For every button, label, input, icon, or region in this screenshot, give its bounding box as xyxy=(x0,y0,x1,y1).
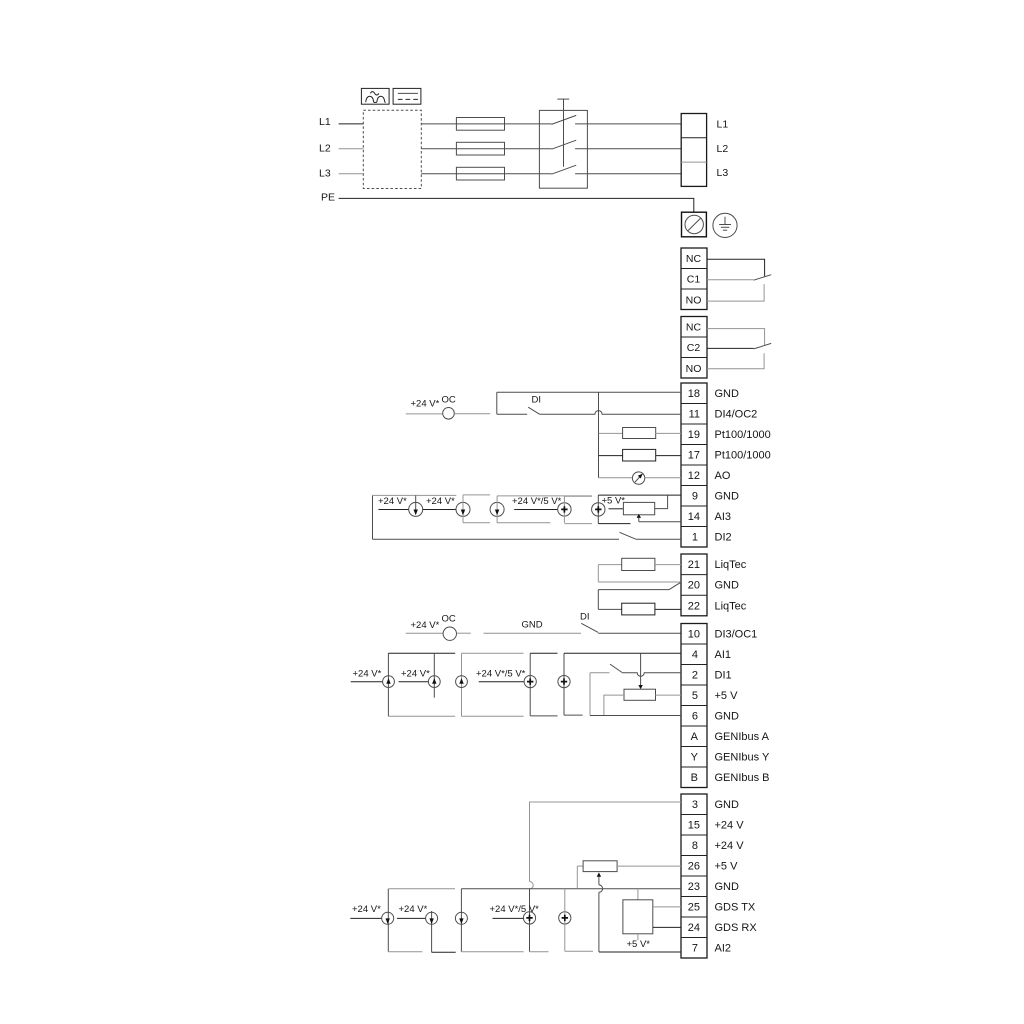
svg-text:OC: OC xyxy=(442,614,456,625)
svg-text:C1: C1 xyxy=(687,274,701,286)
svg-text:8: 8 xyxy=(692,840,698,852)
svg-text:GDS TX: GDS TX xyxy=(715,902,756,914)
svg-text:+24 V*: +24 V* xyxy=(411,620,440,631)
svg-text:L2: L2 xyxy=(717,143,729,155)
svg-text:1: 1 xyxy=(692,532,698,544)
svg-text:15: 15 xyxy=(688,820,700,832)
svg-text:19: 19 xyxy=(688,429,700,441)
svg-text:GND: GND xyxy=(715,799,740,811)
svg-text:+24 V*: +24 V* xyxy=(401,668,430,679)
svg-text:Pt100/1000: Pt100/1000 xyxy=(715,429,771,441)
svg-text:Y: Y xyxy=(691,752,699,764)
svg-text:DI1: DI1 xyxy=(715,670,732,682)
svg-text:20: 20 xyxy=(688,580,700,592)
svg-text:2: 2 xyxy=(692,670,698,682)
svg-text:GENIbus Y: GENIbus Y xyxy=(715,752,770,764)
svg-text:9: 9 xyxy=(692,491,698,503)
svg-text:12: 12 xyxy=(688,470,700,482)
svg-text:+5 V: +5 V xyxy=(715,861,739,873)
svg-text:7: 7 xyxy=(692,943,698,955)
svg-text:GND: GND xyxy=(715,388,740,400)
svg-text:NO: NO xyxy=(686,294,702,306)
svg-text:GND: GND xyxy=(715,881,740,893)
svg-text:+24 V*: +24 V* xyxy=(353,668,382,679)
svg-text:24: 24 xyxy=(688,922,700,934)
svg-text:+24 V*/5 V*: +24 V*/5 V* xyxy=(512,496,562,507)
svg-text:+24 V*/5 V*: +24 V*/5 V* xyxy=(476,668,526,679)
svg-text:DI: DI xyxy=(532,395,542,406)
svg-text:11: 11 xyxy=(689,409,700,421)
svg-text:26: 26 xyxy=(688,861,700,873)
svg-text:+5 V*: +5 V* xyxy=(627,939,651,950)
svg-text:14: 14 xyxy=(688,511,700,523)
svg-text:AI2: AI2 xyxy=(715,943,732,955)
svg-text:L2: L2 xyxy=(319,143,331,155)
svg-text:23: 23 xyxy=(688,881,700,893)
svg-text:A: A xyxy=(691,731,699,743)
svg-text:+24 V*: +24 V* xyxy=(399,904,428,915)
svg-text:+24 V: +24 V xyxy=(715,840,745,852)
svg-text:NC: NC xyxy=(686,253,702,265)
svg-text:GND: GND xyxy=(522,619,543,630)
svg-text:AI3: AI3 xyxy=(715,511,732,523)
svg-text:6: 6 xyxy=(692,711,698,723)
svg-text:+24 V*: +24 V* xyxy=(426,496,455,507)
svg-text:10: 10 xyxy=(688,629,700,641)
svg-text:L1: L1 xyxy=(319,116,331,128)
svg-text:GND: GND xyxy=(715,491,740,503)
svg-text:DI2: DI2 xyxy=(715,532,732,544)
svg-text:4: 4 xyxy=(692,649,698,661)
svg-text:AI1: AI1 xyxy=(715,649,732,661)
svg-text:C2: C2 xyxy=(687,342,701,354)
svg-text:B: B xyxy=(691,772,698,784)
svg-text:21: 21 xyxy=(688,559,700,571)
svg-text:NC: NC xyxy=(686,322,702,334)
svg-text:17: 17 xyxy=(688,450,700,462)
svg-text:GENIbus A: GENIbus A xyxy=(715,731,770,743)
svg-text:GENIbus B: GENIbus B xyxy=(715,772,770,784)
svg-text:+24 V*: +24 V* xyxy=(378,496,407,507)
svg-text:+24 V*: +24 V* xyxy=(352,904,381,915)
svg-text:+5 V*: +5 V* xyxy=(602,495,626,506)
svg-text:L1: L1 xyxy=(717,119,729,131)
svg-text:NO: NO xyxy=(686,363,702,375)
svg-text:L3: L3 xyxy=(717,167,729,179)
svg-text:L3: L3 xyxy=(319,167,331,179)
svg-text:+24 V*: +24 V* xyxy=(411,399,440,410)
svg-text:OC: OC xyxy=(442,395,456,406)
svg-text:+24 V*/5 V*: +24 V*/5 V* xyxy=(490,904,540,915)
svg-text:+24 V: +24 V xyxy=(715,820,745,832)
svg-text:DI3/OC1: DI3/OC1 xyxy=(715,629,758,641)
svg-text:5: 5 xyxy=(692,690,698,702)
svg-text:LiqTec: LiqTec xyxy=(715,559,747,571)
svg-text:AO: AO xyxy=(715,470,731,482)
svg-text:GDS RX: GDS RX xyxy=(715,922,758,934)
svg-text:22: 22 xyxy=(688,600,700,612)
svg-text:LiqTec: LiqTec xyxy=(715,600,747,612)
svg-text:25: 25 xyxy=(688,902,700,914)
svg-text:DI: DI xyxy=(580,612,590,623)
svg-text:DI4/OC2: DI4/OC2 xyxy=(715,409,758,421)
svg-text:PE: PE xyxy=(321,192,335,204)
svg-text:+5 V: +5 V xyxy=(715,690,739,702)
svg-text:18: 18 xyxy=(688,388,700,400)
svg-text:GND: GND xyxy=(715,711,740,723)
svg-text:Pt100/1000: Pt100/1000 xyxy=(715,450,771,462)
svg-text:GND: GND xyxy=(715,580,740,592)
svg-text:3: 3 xyxy=(692,799,698,811)
